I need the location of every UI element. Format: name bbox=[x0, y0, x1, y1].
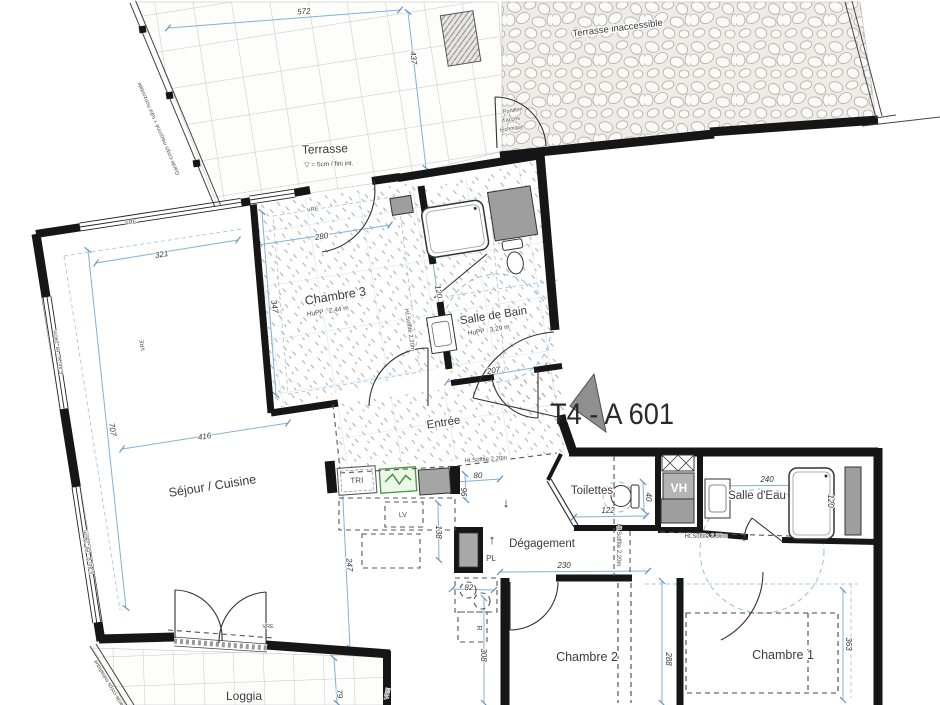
dishwasher-label: LV bbox=[399, 512, 408, 519]
closet-label: PL bbox=[486, 554, 496, 563]
dimension-label: 82 bbox=[464, 583, 474, 592]
future-partition-chambre2 bbox=[618, 583, 631, 703]
room-label-loggia: Loggia bbox=[226, 689, 262, 703]
floor-plan-drawing: T4 - A 601 Terrasse▽ = 5cm / fini int.Te… bbox=[0, 0, 940, 705]
dimension-label: 437 bbox=[408, 51, 418, 66]
dimension-label: 247 bbox=[344, 557, 354, 573]
french-door-loggia bbox=[168, 590, 274, 652]
vh-label: VH bbox=[671, 481, 688, 495]
room-label-toilettes: Toilettes bbox=[571, 485, 613, 497]
dimension-label: 40 bbox=[644, 493, 653, 502]
duct-box bbox=[390, 195, 413, 215]
room-label-salle-d-eau: Salle d'Eau bbox=[728, 490, 786, 502]
room-label-chambre-2: Chambre 2 bbox=[556, 650, 618, 664]
window-bay-sejour bbox=[79, 197, 242, 232]
dimension-label: 230 bbox=[556, 561, 571, 570]
room-label-sejour-cuisine: Séjour / Cuisine bbox=[168, 472, 257, 500]
dimension-label: 122 bbox=[601, 506, 615, 515]
shower-salle-de-bain bbox=[421, 199, 490, 258]
electrical-panel bbox=[379, 467, 417, 493]
room-label-terrasse: Terrasse bbox=[302, 141, 349, 157]
fridge-label: R bbox=[475, 625, 482, 630]
kitchen-block bbox=[418, 468, 451, 495]
room-label-degagement: Dégagement bbox=[509, 538, 576, 550]
duct-box bbox=[661, 499, 694, 523]
floor-plan-page: T4 - A 601 Terrasse▽ = 5cm / fini int.Te… bbox=[0, 0, 940, 705]
dimension-label: 288 bbox=[664, 651, 673, 666]
dimension-label: 707 bbox=[107, 422, 118, 437]
dimension-label: 79 bbox=[335, 689, 345, 699]
wc-toilettes bbox=[611, 485, 639, 508]
dimension-label: 572 bbox=[297, 7, 311, 17]
shutter-label: VRE bbox=[125, 219, 137, 227]
dimension-label: 240 bbox=[759, 475, 774, 484]
duct-box bbox=[845, 467, 861, 535]
shaft-x-box bbox=[662, 455, 694, 471]
dimension-label: 363 bbox=[844, 637, 853, 651]
soffit-note: Ht.Soffite 2,20m bbox=[615, 524, 621, 567]
dimension-label: 96 bbox=[459, 488, 468, 497]
inaccessible-terrace-floor bbox=[502, 2, 876, 152]
soffit-note: Ht.Soffite 2,30m bbox=[685, 534, 728, 540]
dimension-label: 321 bbox=[154, 249, 169, 260]
dimension-label: 308 bbox=[479, 648, 488, 662]
down-arrow: ↓ bbox=[503, 495, 510, 510]
tri-label: TRI bbox=[350, 476, 363, 486]
shutter-label: VRE bbox=[262, 624, 274, 630]
dimension-label: 120 bbox=[826, 494, 835, 508]
room-label-chambre-1: Chambre 1 bbox=[752, 648, 814, 662]
dimension-label: 80 bbox=[473, 471, 483, 480]
closet-pl bbox=[454, 527, 483, 573]
duct-box bbox=[488, 186, 538, 241]
up-arrow: ↑ bbox=[489, 532, 496, 547]
dimension-label: 138 bbox=[434, 525, 443, 539]
basin-salle-d-eau bbox=[705, 479, 730, 518]
shutter-label: VRE bbox=[139, 339, 147, 351]
dimension-label: 416 bbox=[197, 431, 212, 442]
basin-salle-de-bain bbox=[426, 314, 456, 353]
unit-title: T4 - A 601 bbox=[550, 398, 674, 431]
